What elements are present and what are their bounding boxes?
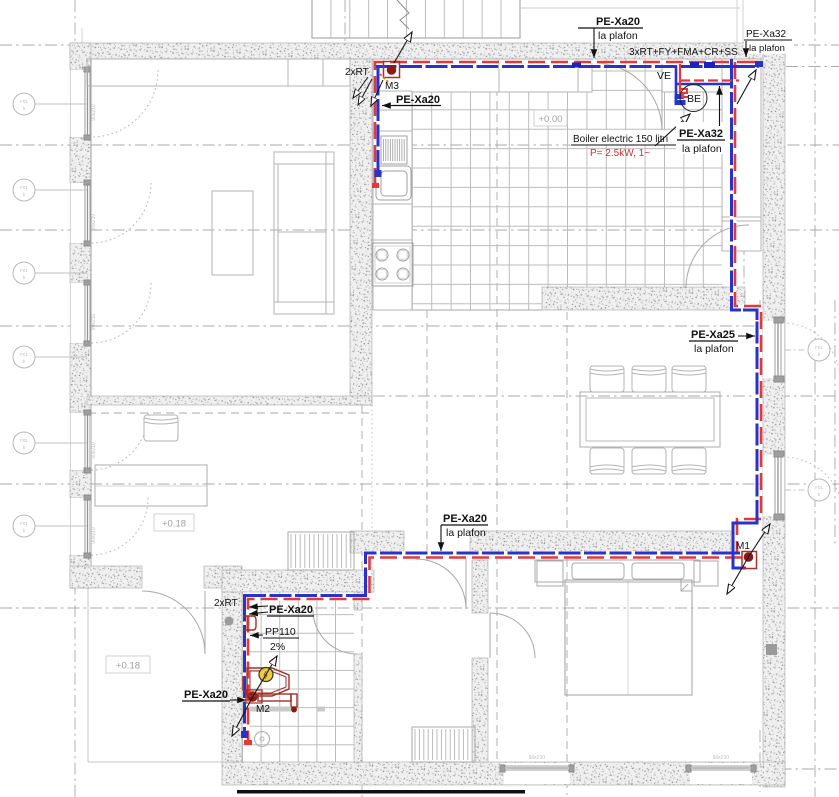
- svg-text:F01: F01: [20, 352, 28, 357]
- svg-text:F01: F01: [20, 99, 28, 104]
- svg-text:PE-Xa20: PE-Xa20: [443, 513, 487, 525]
- svg-text:la plafon: la plafon: [694, 343, 734, 355]
- svg-text:90x210: 90x210: [91, 104, 97, 121]
- svg-text:PE-Xa20: PE-Xa20: [396, 94, 440, 106]
- svg-text:90x210: 90x210: [91, 314, 97, 331]
- svg-text:la plafon: la plafon: [682, 143, 722, 155]
- svg-text:PE-Xa32: PE-Xa32: [746, 29, 786, 40]
- svg-text:PE-Xa20: PE-Xa20: [184, 689, 228, 701]
- svg-text:90x210: 90x210: [91, 442, 97, 459]
- svg-text:90x210: 90x210: [91, 214, 97, 231]
- svg-text:M2: M2: [256, 704, 270, 715]
- svg-text:90x210: 90x210: [529, 755, 546, 761]
- svg-text:2xRT: 2xRT: [214, 598, 238, 609]
- svg-text:PE-Xa20: PE-Xa20: [269, 604, 313, 616]
- svg-text:F01: F01: [20, 521, 28, 526]
- svg-text:M1: M1: [736, 541, 750, 552]
- svg-text:2xRT: 2xRT: [345, 67, 369, 78]
- svg-text:F01: F01: [20, 268, 28, 273]
- svg-text:la plafon: la plafon: [598, 30, 638, 42]
- svg-text:90x210: 90x210: [713, 755, 730, 761]
- svg-text:+0.00: +0.00: [538, 114, 562, 125]
- svg-text:PP110: PP110: [265, 626, 296, 638]
- svg-text:2%: 2%: [270, 641, 285, 653]
- svg-text:F01: F01: [815, 485, 823, 490]
- svg-text:3xRT+FY+FMA+CR+SS: 3xRT+FY+FMA+CR+SS: [629, 47, 738, 58]
- svg-text:PE-Xa32: PE-Xa32: [679, 128, 723, 140]
- svg-text:+0.18: +0.18: [162, 519, 186, 530]
- svg-text:PE-Xa25: PE-Xa25: [691, 329, 735, 341]
- svg-text:90x210: 90x210: [91, 527, 97, 544]
- svg-text:PE-Xa20: PE-Xa20: [596, 16, 640, 28]
- svg-text:M3: M3: [385, 81, 399, 92]
- svg-text:F01: F01: [815, 345, 823, 350]
- svg-text:BE: BE: [687, 93, 701, 105]
- svg-text:F01: F01: [20, 438, 28, 443]
- svg-text:P= 2.5kW, 1~: P= 2.5kW, 1~: [590, 148, 650, 159]
- svg-text:F01: F01: [20, 185, 28, 190]
- svg-text:Boiler electric 150 litri: Boiler electric 150 litri: [573, 134, 668, 145]
- svg-text:la plafon: la plafon: [749, 43, 785, 54]
- svg-text:VE: VE: [657, 70, 671, 82]
- svg-text:la plafon: la plafon: [446, 527, 486, 539]
- svg-text:+0.18: +0.18: [116, 661, 140, 672]
